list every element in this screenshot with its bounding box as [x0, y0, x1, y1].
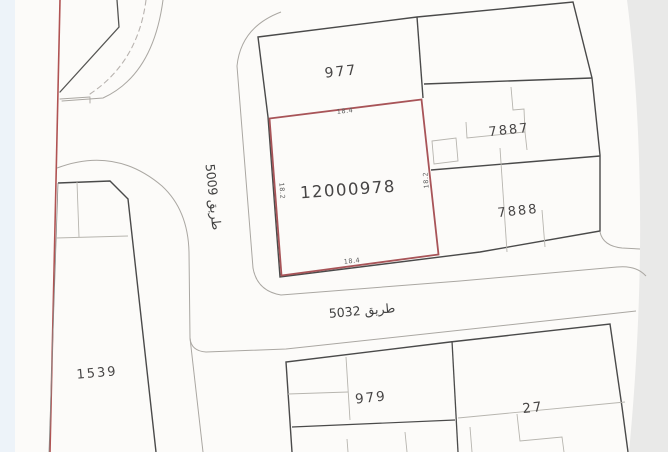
- cadastral-map: 977 7887 7888 12000978 1539 979 27 18.4 …: [0, 0, 668, 452]
- dim-left: 18.2: [277, 182, 286, 199]
- page-left-strip: [0, 0, 15, 452]
- dim-right: 18.2: [421, 172, 430, 189]
- dim-top: 18.4: [336, 106, 353, 116]
- map-canvas: 977 7887 7888 12000978 1539 979 27 18.4 …: [0, 0, 668, 452]
- plot-27-label: 27: [522, 399, 545, 417]
- plot-979-label: 979: [354, 388, 387, 407]
- plot-977-label: 977: [324, 62, 358, 81]
- dim-bottom: 18.4: [343, 256, 360, 266]
